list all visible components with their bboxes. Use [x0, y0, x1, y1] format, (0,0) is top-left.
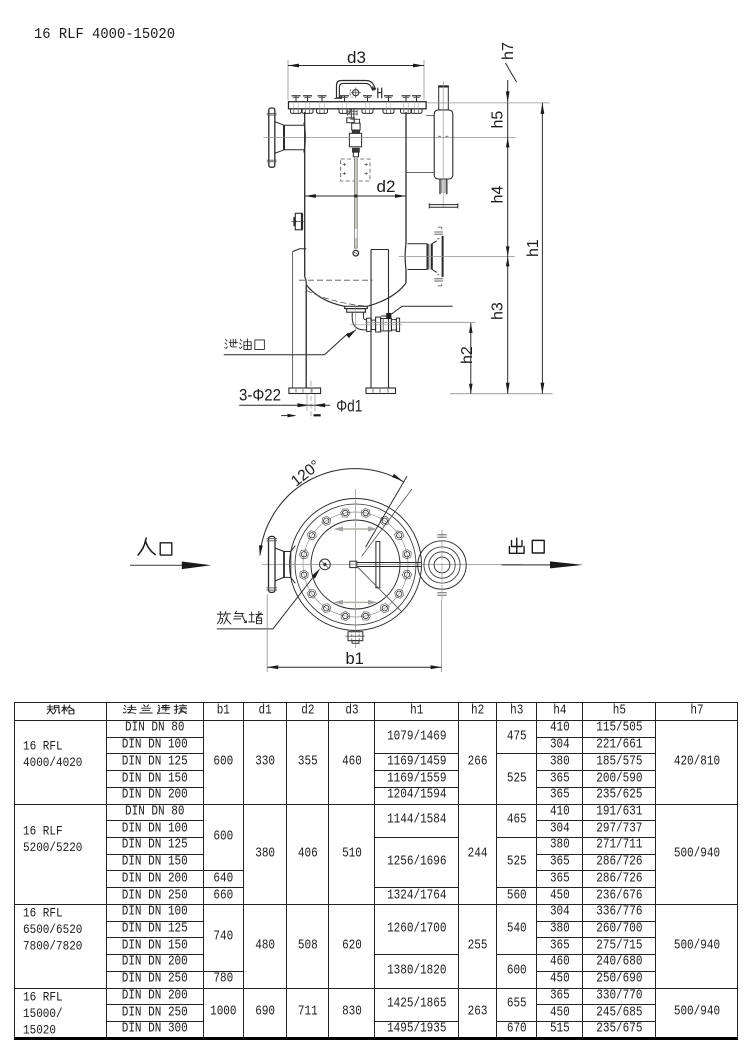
svg-text:h3: h3 — [490, 302, 507, 320]
svg-text:120°: 120° — [288, 457, 324, 490]
svg-text:d3: d3 — [347, 48, 366, 67]
svg-text:16 RLF 4000-15020: 16 RLF 4000-15020 — [34, 26, 175, 43]
svg-text:Φd1: Φd1 — [336, 398, 362, 416]
svg-text:b1: b1 — [346, 650, 364, 668]
svg-text:h2: h2 — [459, 346, 476, 364]
svg-text:h1: h1 — [525, 239, 542, 257]
svg-text:h7: h7 — [500, 42, 517, 60]
svg-text:3-Φ22: 3-Φ22 — [239, 387, 281, 405]
svg-text:h4: h4 — [490, 186, 507, 204]
svg-text:d2: d2 — [377, 177, 396, 196]
svg-text:h5: h5 — [490, 111, 507, 129]
